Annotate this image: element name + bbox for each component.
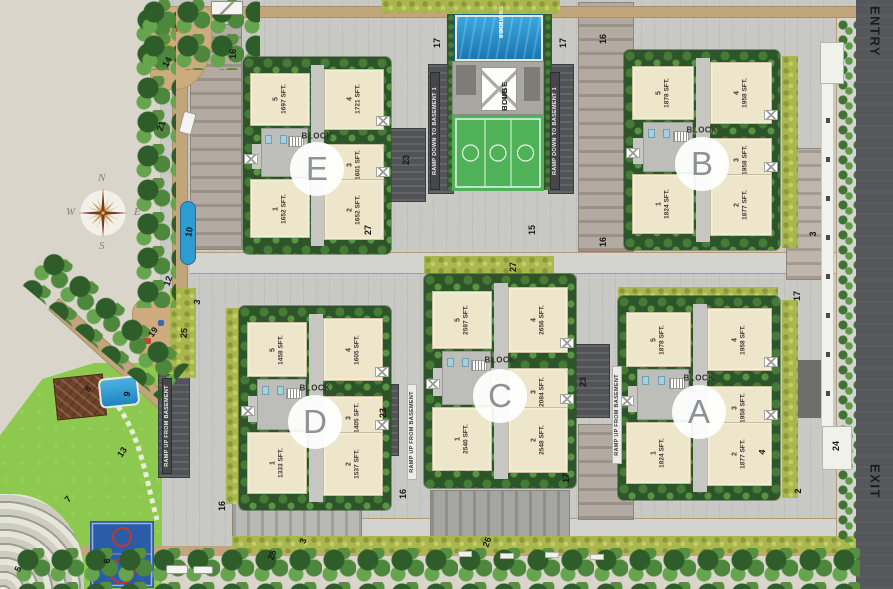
plan-marker-10: 10 xyxy=(183,226,195,238)
unit-area: 1605 SFT. xyxy=(353,335,360,365)
unit-label: 11824 SFT. xyxy=(651,438,666,468)
unit-label: 42656 SFT. xyxy=(530,305,545,335)
plan-marker-24: 24 xyxy=(831,441,841,451)
unit-area: 2548 SFT. xyxy=(538,425,545,455)
plan-marker-23: 23 xyxy=(378,408,388,418)
parking-strip-south xyxy=(430,490,570,538)
plan-marker-27: 27 xyxy=(508,262,518,272)
unit-label: 21877 SFT. xyxy=(732,439,747,469)
ac-unit-icon xyxy=(241,406,255,416)
unit-number: 1 xyxy=(454,424,462,454)
unit-5-block-A: 51878 SFT. xyxy=(626,312,691,367)
unit-number: 4 xyxy=(530,305,538,335)
club-house-label-wrap: CLUBHOUSE xyxy=(486,88,514,134)
compass-west-label: W xyxy=(66,206,75,218)
unit-area: 1458 SFT. xyxy=(277,335,284,365)
unit-number: 4 xyxy=(346,85,354,115)
unit-label: 31601 SFT. xyxy=(346,151,361,181)
ac-unit-icon xyxy=(764,410,778,420)
plan-marker-17: 17 xyxy=(432,38,442,48)
lift-icon xyxy=(462,358,469,367)
block-letter-badge: D xyxy=(288,395,342,449)
plan-marker-3: 3 xyxy=(808,231,818,236)
unit-area: 1652 SFT. xyxy=(354,195,361,225)
unit-label: 31958 SFT. xyxy=(732,393,747,423)
ac-unit-icon xyxy=(626,148,640,158)
unit-area: 1878 SFT. xyxy=(663,78,670,108)
unit-number: 3 xyxy=(345,403,353,433)
unit-label: 41721 SFT. xyxy=(346,85,361,115)
plan-marker-17: 17 xyxy=(561,473,571,483)
ramp-label: RAMP DOWN TO BASEMENT 1 xyxy=(430,72,440,190)
ac-unit-icon xyxy=(375,367,389,377)
unit-number: 2 xyxy=(733,190,741,220)
unit-area: 1824 SFT. xyxy=(659,438,666,468)
unit-area: 1958 SFT. xyxy=(740,325,747,355)
plan-marker-16: 16 xyxy=(598,34,608,44)
unit-label: 11824 SFT. xyxy=(655,189,670,219)
block-label: BLOCK xyxy=(485,355,516,364)
lift-icon xyxy=(280,135,287,144)
swimming-pool: SWIMMINGPOOL xyxy=(455,15,543,61)
block-B: 51878 SFT.41958 SFT.31958 SFT.11824 SFT.… xyxy=(624,50,780,250)
tree-row-south xyxy=(16,548,860,589)
unit-5-block-B: 51878 SFT. xyxy=(632,66,694,120)
ramp-label-text: RAMP UP FROM BASEMENT xyxy=(614,374,620,456)
entrance-structure xyxy=(820,42,844,84)
unit-area: 1958 SFT. xyxy=(740,393,747,423)
unit-label: 11333 SFT. xyxy=(269,448,284,478)
plan-marker-15: 15 xyxy=(527,225,537,235)
unit-label: 21537 SFT. xyxy=(345,449,360,479)
plan-marker-6: 6 xyxy=(102,558,112,564)
unit-number: 4 xyxy=(733,78,741,108)
unit-label: 52587 SFT. xyxy=(454,305,469,335)
unit-label: 22548 SFT. xyxy=(530,425,545,455)
ac-unit-icon xyxy=(764,110,778,120)
ac-unit-icon xyxy=(376,167,390,177)
unit-area: 1333 SFT. xyxy=(277,448,284,478)
ramp-label: RAMP UP FROM BASEMENT xyxy=(612,366,622,464)
block-label: BLOCK xyxy=(684,373,715,382)
lift-icon xyxy=(265,135,272,144)
unit-number: 2 xyxy=(345,449,353,479)
block-C: 52587 SFT.42656 SFT.32084 SFT.12540 SFT.… xyxy=(424,274,576,488)
plan-marker-27: 27 xyxy=(363,225,373,235)
lift-icon xyxy=(663,129,670,138)
ac-unit-icon xyxy=(560,338,574,348)
plant-label-chip xyxy=(545,552,559,558)
ramp-label: RAMP UP FROM BASEMENT xyxy=(162,378,172,474)
compass-east-label: E xyxy=(134,206,141,218)
unit-area: 2656 SFT. xyxy=(538,305,545,335)
unit-area: 1877 SFT. xyxy=(740,439,747,469)
unit-4-block-A: 41958 SFT. xyxy=(707,308,772,371)
unit-number: 3 xyxy=(733,145,741,175)
unit-area: 1878 SFT. xyxy=(659,325,666,355)
unit-area: 2587 SFT. xyxy=(462,305,469,335)
unit-area: 1877 SFT. xyxy=(741,190,748,220)
lift-icon xyxy=(648,129,655,138)
walkway-tick-marks xyxy=(826,84,830,430)
block-label: BLOCK xyxy=(300,383,331,392)
plan-marker-17: 17 xyxy=(558,38,568,48)
lift-icon xyxy=(658,376,665,385)
unit-4-block-C: 42656 SFT. xyxy=(508,287,569,353)
compass-rose-icon xyxy=(76,186,130,240)
lift-icon xyxy=(262,386,269,395)
unit-area: 2540 SFT. xyxy=(462,424,469,454)
unit-number: 1 xyxy=(269,448,277,478)
plant-label-chip xyxy=(590,554,604,560)
unit-label: 11652 SFT. xyxy=(272,194,287,224)
plan-marker-16: 16 xyxy=(217,501,227,511)
entrance-gate-barrier xyxy=(211,1,243,15)
ac-unit-icon xyxy=(764,357,778,367)
ramp-label-text: RAMP DOWN TO BASEMENT 1 xyxy=(552,87,558,175)
unit-5-block-D: 51458 SFT. xyxy=(247,322,308,377)
unit-5-block-E: 51697 SFT. xyxy=(250,73,309,126)
club-house-wing xyxy=(524,67,540,101)
block-A: 51878 SFT.41958 SFT.31958 SFT.11824 SFT.… xyxy=(618,296,780,500)
block-letter-badge: B xyxy=(675,137,729,191)
hedge-strip-above-block-c xyxy=(424,256,554,273)
unit-area: 2084 SFT. xyxy=(538,377,545,407)
ramp-label: RAMP UP FROM BASEMENT xyxy=(407,384,417,480)
unit-number: 1 xyxy=(272,194,280,224)
unit-label: 51697 SFT. xyxy=(272,85,287,115)
hedge-strip-east-of-block-b xyxy=(782,56,798,248)
unit-label: 41958 SFT. xyxy=(732,325,747,355)
car-icon xyxy=(193,566,213,574)
plant-label-chip xyxy=(458,551,472,557)
compass-north-label: N xyxy=(98,172,105,184)
unit-label: 51458 SFT. xyxy=(269,335,284,365)
unit-label: 51878 SFT. xyxy=(651,325,666,355)
lift-icon xyxy=(447,358,454,367)
hedge-strip-west-of-block-d xyxy=(226,308,240,504)
plan-marker-16: 16 xyxy=(398,489,408,499)
unit-area: 1958 SFT. xyxy=(741,78,748,108)
unit-label: 31405 SFT. xyxy=(345,403,360,433)
ac-unit-icon xyxy=(376,116,390,126)
unit-label: 41605 SFT. xyxy=(345,335,360,365)
block-letter-badge: C xyxy=(473,369,527,423)
plan-marker-25: 25 xyxy=(179,328,190,339)
unit-5-block-C: 52587 SFT. xyxy=(432,291,493,349)
unit-label: 31958 SFT. xyxy=(733,145,748,175)
ac-unit-icon xyxy=(560,394,574,404)
club-house-wing xyxy=(456,65,476,95)
unit-area: 1721 SFT. xyxy=(354,85,361,115)
plan-marker-2: 2 xyxy=(793,488,803,493)
block-label: BLOCK xyxy=(687,126,718,135)
ac-unit-icon xyxy=(375,420,389,430)
plan-marker-23: 23 xyxy=(578,377,588,387)
site-master-plan: SWIMMINGPOOL CLUBHOUSE ENTRY EXIT xyxy=(0,0,893,589)
unit-4-block-D: 41605 SFT. xyxy=(323,318,384,381)
unit-number: 4 xyxy=(345,335,353,365)
unit-area: 1405 SFT. xyxy=(353,403,360,433)
ac-unit-icon xyxy=(244,154,258,164)
unit-number: 2 xyxy=(530,425,538,455)
unit-number: 2 xyxy=(346,195,354,225)
plan-marker-16: 16 xyxy=(228,49,238,59)
unit-label: 21652 SFT. xyxy=(346,195,361,225)
plan-marker-16: 16 xyxy=(598,237,608,247)
unit-label: 41958 SFT. xyxy=(733,78,748,108)
ac-unit-icon xyxy=(426,379,440,389)
ac-unit-icon xyxy=(764,162,778,172)
compass-south-label: S xyxy=(99,240,105,252)
unit-area: 1652 SFT. xyxy=(280,194,287,224)
unit-number: 5 xyxy=(272,85,280,115)
unit-number: 1 xyxy=(655,189,663,219)
plant-label-chip xyxy=(500,553,514,559)
block-letter-badge: A xyxy=(672,385,726,439)
unit-area: 1824 SFT. xyxy=(663,189,670,219)
plan-marker-23: 23 xyxy=(401,155,411,165)
unit-area: 1958 SFT. xyxy=(741,145,748,175)
play-equipment-icon xyxy=(158,320,164,326)
unit-label: 12540 SFT. xyxy=(454,424,469,454)
kids-pool xyxy=(98,375,141,409)
unit-number: 5 xyxy=(655,78,663,108)
block-D: 51458 SFT.41605 SFT.31405 SFT.11333 SFT.… xyxy=(239,306,391,510)
unit-area: 1537 SFT. xyxy=(353,449,360,479)
block-letter-badge: E xyxy=(290,142,344,196)
ramp-label-text: RAMP DOWN TO BASEMENT 1 xyxy=(432,87,438,175)
lift-icon xyxy=(642,376,649,385)
unit-number: 3 xyxy=(530,377,538,407)
block-label: BLOCK xyxy=(302,131,333,140)
unit-area: 1601 SFT. xyxy=(354,151,361,181)
unit-label: 32084 SFT. xyxy=(530,377,545,407)
hedge-strip-north xyxy=(382,0,560,13)
unit-label: 51878 SFT. xyxy=(655,78,670,108)
car-icon xyxy=(166,565,188,574)
plan-marker-17: 17 xyxy=(792,291,802,301)
unit-label: 21877 SFT. xyxy=(733,190,748,220)
hedge-strip-east-of-block-a xyxy=(782,300,798,498)
ramp-label-text: RAMP UP FROM BASEMENT xyxy=(164,385,170,467)
ramp-label: RAMP DOWN TO BASEMENT 1 xyxy=(550,72,560,190)
unit-4-block-B: 41958 SFT. xyxy=(710,62,772,124)
unit-number: 5 xyxy=(454,305,462,335)
unit-area: 1697 SFT. xyxy=(280,85,287,115)
unit-number: 5 xyxy=(269,335,277,365)
lift-icon xyxy=(277,386,284,395)
ramp-label-text: RAMP UP FROM BASEMENT xyxy=(409,391,415,473)
unit-number: 3 xyxy=(346,151,354,181)
